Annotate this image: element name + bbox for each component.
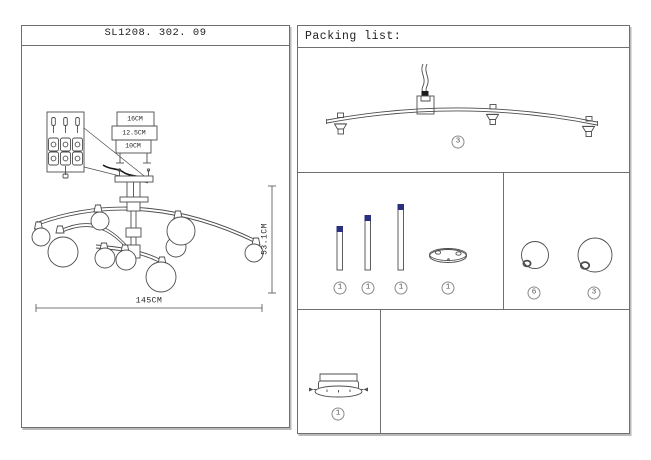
qty-curved-arm: 3	[452, 136, 465, 149]
canopy-dim-12-5-label: 12.5CM	[122, 130, 145, 137]
row3-cell-divider	[380, 309, 381, 433]
model-panel	[21, 25, 290, 428]
qty-globe-small: 6	[528, 287, 541, 300]
qty-mounting-ring: 1	[442, 282, 455, 295]
qty-globe-large: 3	[588, 287, 601, 300]
qty-rod-medium: 1	[362, 282, 375, 295]
row2-divider	[298, 309, 629, 310]
packing-list-header: Packing list:	[305, 30, 401, 43]
packing-header-divider	[298, 47, 629, 48]
title-divider	[22, 45, 289, 46]
height-dimension-label: 53.1CM	[261, 223, 270, 255]
row2-cell-divider	[503, 172, 504, 309]
qty-ceiling-canopy: 1	[332, 408, 345, 421]
qty-rod-long: 1	[395, 282, 408, 295]
qty-rod-short: 1	[334, 282, 347, 295]
canopy-dim-10-label: 10CM	[125, 143, 141, 150]
packing-panel	[297, 25, 630, 434]
model-number: SL1208. 302. 09	[21, 27, 290, 39]
width-dimension-label: 145CM	[136, 297, 163, 306]
instruction-sheet: SL1208. 302. 09 Packing list: 16CM 12.5C…	[0, 0, 651, 460]
row1-divider	[298, 172, 629, 173]
canopy-dim-16-label: 16CM	[127, 116, 143, 123]
